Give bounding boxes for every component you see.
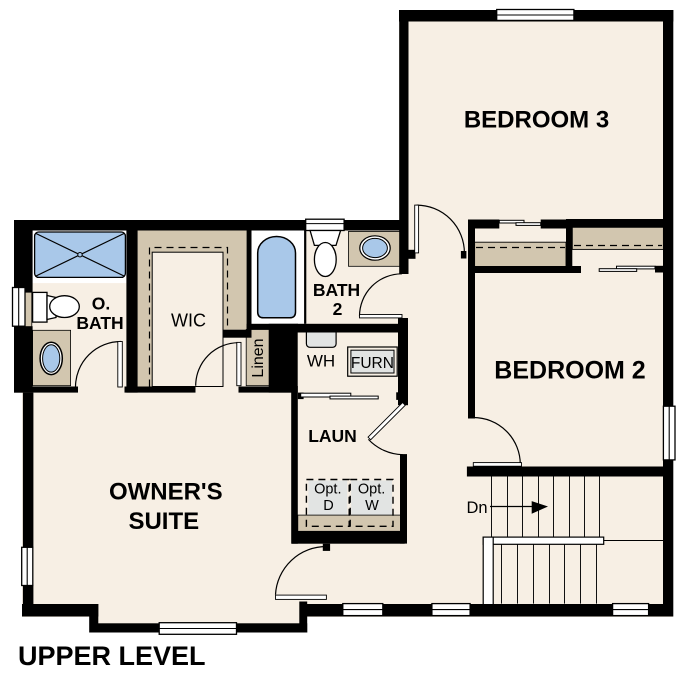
svg-text:O.: O. <box>92 294 110 314</box>
svg-text:LAUN: LAUN <box>308 426 357 446</box>
svg-text:WIC: WIC <box>171 310 206 330</box>
svg-text:FURN: FURN <box>351 355 394 372</box>
svg-text:BEDROOM 2: BEDROOM 2 <box>494 357 645 385</box>
svg-text:Linen: Linen <box>250 338 267 377</box>
svg-text:BATH: BATH <box>76 313 123 333</box>
svg-text:Opt.: Opt. <box>314 482 341 498</box>
svg-text:W: W <box>365 498 379 514</box>
svg-text:Opt.: Opt. <box>358 482 385 498</box>
svg-text:Dn: Dn <box>467 499 488 517</box>
svg-text:WH: WH <box>307 352 335 371</box>
svg-text:UPPER LEVEL: UPPER LEVEL <box>18 641 206 671</box>
svg-text:SUITE: SUITE <box>128 508 199 535</box>
svg-text:OWNER'S: OWNER'S <box>109 479 223 506</box>
svg-text:2: 2 <box>333 299 343 319</box>
svg-text:BEDROOM 3: BEDROOM 3 <box>464 107 609 134</box>
svg-text:BATH: BATH <box>313 280 360 300</box>
svg-text:D: D <box>323 498 333 514</box>
